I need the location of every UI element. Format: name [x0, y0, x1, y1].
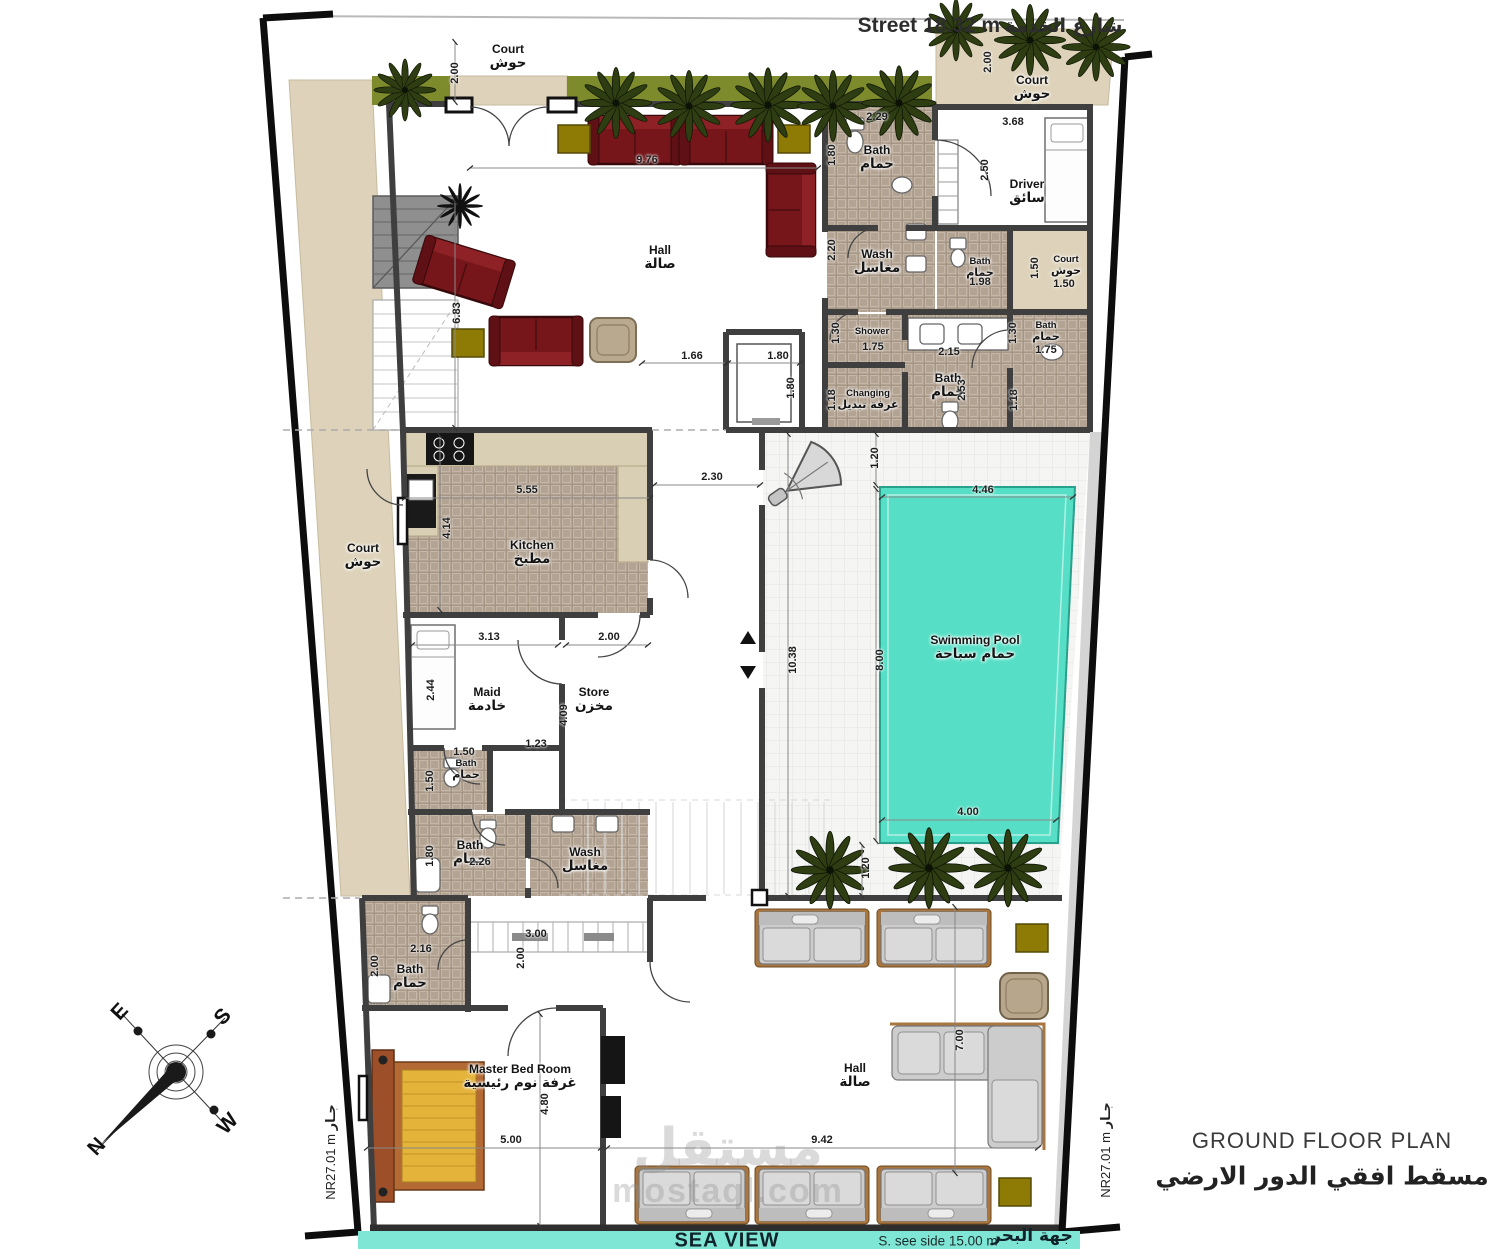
neighbor-label-left: NR27.01 m جـار — [323, 1104, 339, 1200]
sea-view-label: SEA VIEW — [674, 1230, 779, 1249]
staircase — [373, 196, 458, 430]
swimming-pool — [880, 487, 1075, 843]
neighbor-left-value: NR27.01 m — [323, 1134, 338, 1200]
neighbor-left-ar: جـار — [324, 1104, 339, 1130]
vestibule-window-band — [470, 922, 648, 952]
street-label-en: Street 18.32 m — [858, 14, 1000, 37]
neighbor-label-right: NR27.01 m جـار — [1098, 1102, 1114, 1198]
plan-title-ar: مسقط افقي الدور الارضي — [1155, 1162, 1488, 1191]
sea-label-ar: جهة البحر — [991, 1226, 1073, 1246]
street-label: Street 18.32 m شارع الخدمة — [858, 14, 1123, 38]
sea-side-note: S. see side 15.00 m — [878, 1234, 997, 1249]
compass-rose — [96, 1014, 230, 1151]
neighbor-right-value: NR27.01 m — [1098, 1132, 1113, 1198]
master-bed — [372, 1050, 484, 1202]
section-arrow — [740, 631, 756, 679]
plan-title-en: GROUND FLOOR PLAN — [1192, 1128, 1452, 1154]
bottom-hall-furniture — [635, 909, 1048, 1224]
street-label-ar: شارع الخدمة — [1004, 15, 1122, 37]
neighbor-right-ar: جـار — [1099, 1102, 1114, 1128]
plan-drawing — [0, 0, 1495, 1249]
hall-furniture-red — [412, 115, 816, 366]
floor-plan-canvas: CourtحوشCourtحوشHallصالةBathحمامDriverسا… — [0, 0, 1495, 1249]
